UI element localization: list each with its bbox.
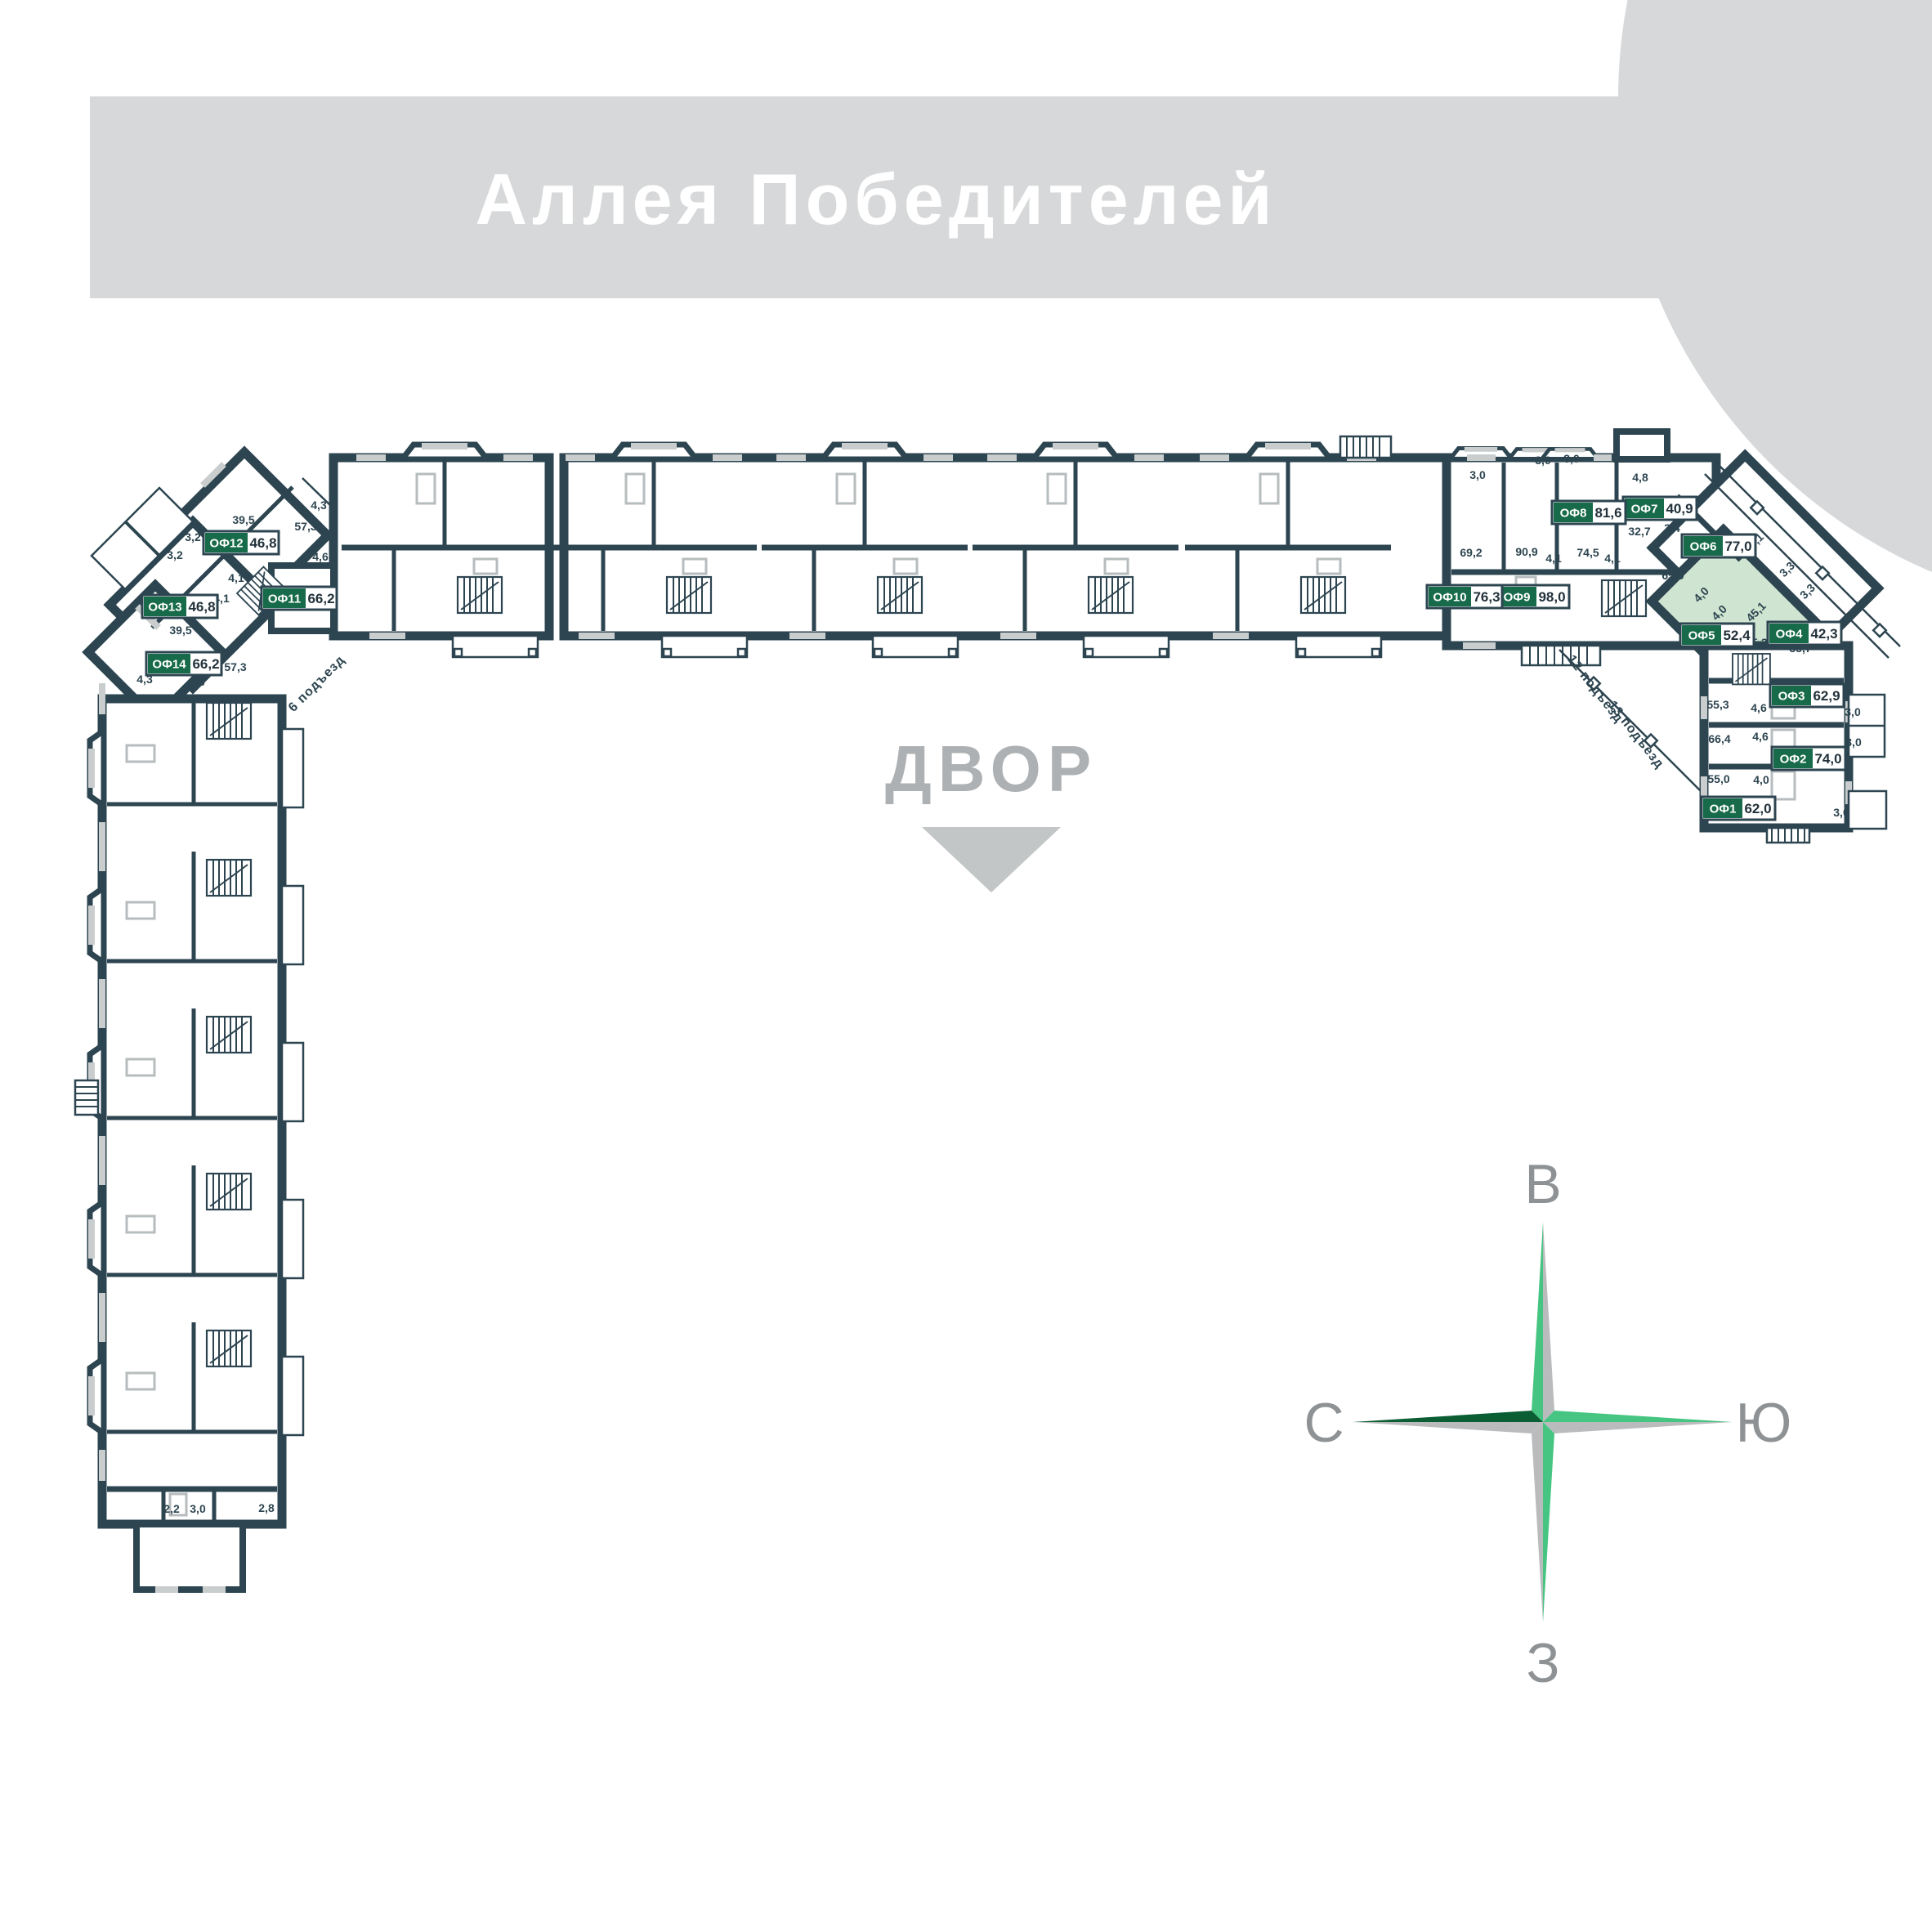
floor-plan-canvas: Аллея Победителей <box>0 0 1932 1932</box>
svg-text:ОФ7: ОФ7 <box>1631 503 1658 517</box>
svg-text:62,0: 62,0 <box>1744 801 1771 816</box>
office-badge-of6[interactable]: ОФ6 77,0 <box>1682 534 1755 557</box>
svg-text:ОФ14: ОФ14 <box>152 658 186 672</box>
office-badge-of2[interactable]: ОФ2 74,0 <box>1772 747 1845 770</box>
svg-text:77,0: 77,0 <box>1724 539 1751 554</box>
compass-north-label: С <box>1304 1392 1344 1454</box>
dim-label: 4,1 <box>228 571 244 584</box>
porch-hatch <box>1522 646 1600 665</box>
dim-label: 3,0 <box>1845 736 1862 749</box>
dim-label: 3,2 <box>185 530 201 543</box>
office-badge-of12[interactable]: ОФ12 46,8 <box>203 531 279 554</box>
dim-label: 55,3 <box>1706 698 1729 711</box>
entrance-13-label: 13 подъезд <box>1605 699 1666 771</box>
entrance-6-label: 6 подъезд <box>286 653 348 715</box>
svg-text:ОФ12: ОФ12 <box>209 537 243 551</box>
svg-text:76,3: 76,3 <box>1473 589 1500 605</box>
svg-text:98,0: 98,0 <box>1538 589 1565 605</box>
dim-label: 3,0 <box>1535 454 1551 467</box>
dim-label: 2,8 <box>258 1501 275 1514</box>
office-badge-of3[interactable]: ОФ3 62,9 <box>1770 684 1844 707</box>
street-title: Аллея Победителей <box>475 159 1277 239</box>
svg-text:ОФ1: ОФ1 <box>1710 803 1737 816</box>
dim-label: 74,5 <box>1576 546 1599 559</box>
courtyard-text: ДВОР <box>885 732 1098 805</box>
svg-text:74,0: 74,0 <box>1814 751 1841 767</box>
left-wing <box>75 683 303 1590</box>
office-badge-of8[interactable]: ОФ8 81,6 <box>1552 501 1626 524</box>
office-badge-of13[interactable]: ОФ13 46,8 <box>142 595 217 618</box>
dim-label: 55,0 <box>1707 772 1729 785</box>
office-badge-of4[interactable]: ОФ4 42,3 <box>1768 622 1841 645</box>
svg-text:81,6: 81,6 <box>1594 505 1621 521</box>
dim-label: 3,2 <box>167 548 183 561</box>
svg-text:66,2: 66,2 <box>192 656 219 672</box>
dim-label: 4,6 <box>189 675 205 688</box>
svg-text:ОФ2: ОФ2 <box>1780 753 1807 767</box>
office-badge-of11[interactable]: ОФ11 66,2 <box>262 587 337 610</box>
svg-text:ОФ8: ОФ8 <box>1560 507 1587 521</box>
office-badge-of7[interactable]: ОФ7 40,9 <box>1623 497 1697 520</box>
bottom-stairs-hatch <box>1767 828 1809 843</box>
office-badge-of10[interactable]: ОФ10 76,3 <box>1427 585 1502 608</box>
dim-label: 4,3 <box>311 499 327 512</box>
dim-label: 4,8 <box>1632 471 1648 484</box>
dim-label: 2,2 <box>163 1502 180 1515</box>
svg-text:52,4: 52,4 <box>1723 628 1751 643</box>
svg-text:ОФ10: ОФ10 <box>1433 591 1466 605</box>
svg-text:ОФ9: ОФ9 <box>1504 591 1531 605</box>
svg-text:ОФ11: ОФ11 <box>268 593 301 606</box>
svg-text:46,8: 46,8 <box>188 599 215 615</box>
courtyard-label: ДВОР <box>885 732 1098 892</box>
svg-text:ОФ6: ОФ6 <box>1690 540 1717 554</box>
dim-label: 4,6 <box>312 550 329 563</box>
dim-label: 4,6 <box>1752 730 1769 743</box>
dim-label: 39,5 <box>232 513 254 526</box>
svg-text:ОФ13: ОФ13 <box>148 601 181 615</box>
compass-south-label: Ю <box>1736 1392 1792 1454</box>
svg-text:66,2: 66,2 <box>307 591 334 606</box>
office-badge-of9[interactable]: ОФ9 98,0 <box>1496 585 1569 608</box>
dim-label: 57,3 <box>224 660 246 673</box>
compass-east-label: В <box>1524 1153 1561 1215</box>
exterior-stair <box>75 1080 98 1115</box>
dim-label: 39,5 <box>169 624 191 637</box>
office-badge-of5[interactable]: ОФ5 52,4 <box>1680 624 1754 646</box>
office-badge-of1[interactable]: ОФ1 62,0 <box>1702 797 1775 820</box>
dim-label: 3,0 <box>1833 806 1849 819</box>
dim-label: 4,1 <box>1604 552 1621 565</box>
dim-label: 3,0 <box>1845 705 1861 718</box>
roof-hatch <box>1340 436 1391 458</box>
dim-label: 66,4 <box>1708 732 1730 745</box>
compass-icon: В С Ю З <box>1304 1153 1791 1694</box>
dim-label: 3,0 <box>190 1502 206 1515</box>
dim-label: 57,3 <box>294 520 316 533</box>
dim-label: 4,6 <box>1751 701 1767 714</box>
dim-label: 3,0 <box>1469 468 1486 481</box>
dim-label: 3,0 <box>1563 452 1580 465</box>
dim-label: 3,4 <box>1664 521 1680 534</box>
dim-label: 32,7 <box>1628 525 1650 538</box>
svg-text:ОФ3: ОФ3 <box>1778 690 1805 704</box>
site-plan-page: Аллея Победителей <box>0 0 1932 1932</box>
svg-text:40,9: 40,9 <box>1666 501 1693 517</box>
top-wing <box>333 436 1463 657</box>
dim-label: 4,1 <box>1545 552 1562 565</box>
office-badge-of14[interactable]: ОФ14 66,2 <box>146 652 221 675</box>
dim-label: 65,9 <box>1661 569 1684 582</box>
svg-text:ОФ5: ОФ5 <box>1688 629 1715 643</box>
compass-west-label: З <box>1526 1632 1559 1694</box>
svg-text:62,9: 62,9 <box>1813 688 1840 704</box>
dim-label: 90,9 <box>1515 545 1537 558</box>
svg-text:46,8: 46,8 <box>249 535 276 551</box>
svg-text:ОФ4: ОФ4 <box>1776 628 1803 642</box>
courtyard-arrow-icon <box>922 827 1061 892</box>
dim-label: 69,2 <box>1460 546 1482 559</box>
dim-label: 4,0 <box>1753 773 1769 786</box>
svg-text:42,3: 42,3 <box>1810 626 1837 642</box>
